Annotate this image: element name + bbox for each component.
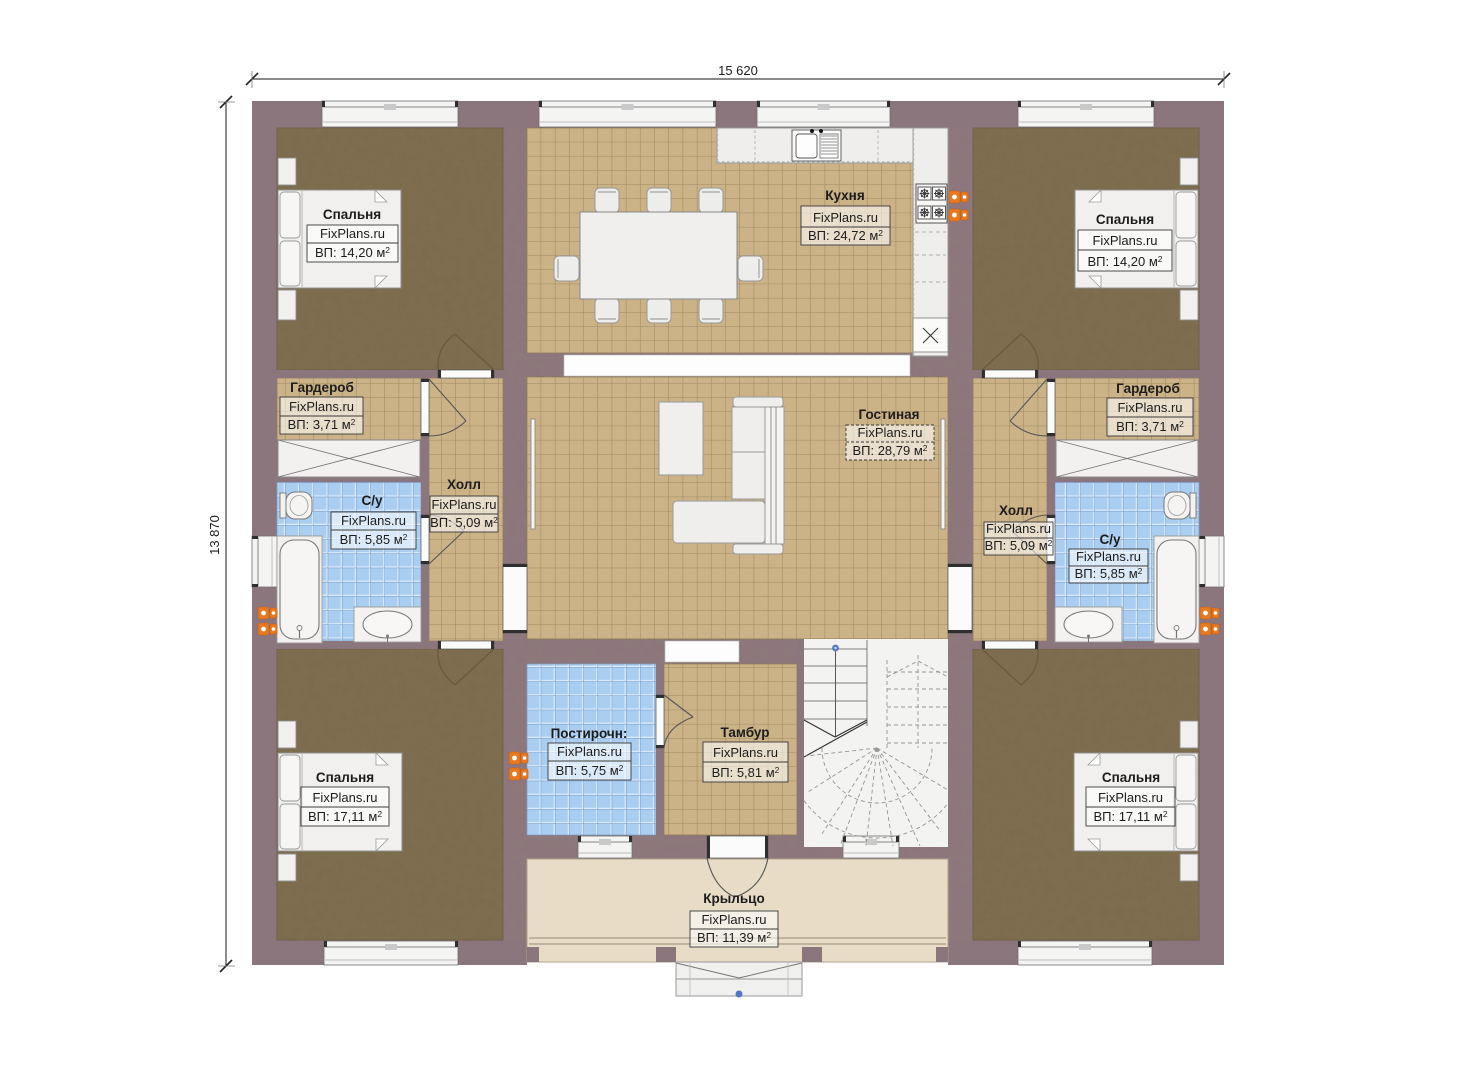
- svg-text:Кухня: Кухня: [825, 188, 864, 203]
- svg-text:FixPlans.ru: FixPlans.ru: [857, 425, 922, 440]
- svg-text:Спальня: Спальня: [316, 770, 374, 785]
- svg-text:Гардероб: Гардероб: [290, 380, 354, 395]
- svg-text:ВП: 3,71 м2: ВП: 3,71 м2: [288, 417, 356, 432]
- svg-text:ВП: 5,85 м2: ВП: 5,85 м2: [340, 532, 408, 547]
- svg-text:FixPlans.ru: FixPlans.ru: [341, 513, 406, 528]
- svg-text:ВП: 3,71 м2: ВП: 3,71 м2: [1116, 419, 1184, 434]
- svg-text:Гостиная: Гостиная: [858, 407, 919, 422]
- svg-text:ВП: 17,11 м2: ВП: 17,11 м2: [1093, 809, 1167, 824]
- svg-text:ВП: 5,09 м2: ВП: 5,09 м2: [430, 515, 498, 530]
- svg-text:ВП: 28,79 м2: ВП: 28,79 м2: [852, 443, 927, 458]
- svg-text:FixPlans.ru: FixPlans.ru: [986, 521, 1051, 536]
- svg-text:ВП: 14,20 м2: ВП: 14,20 м2: [1087, 254, 1162, 269]
- svg-text:FixPlans.ru: FixPlans.ru: [431, 497, 496, 512]
- svg-text:FixPlans.ru: FixPlans.ru: [289, 399, 354, 414]
- svg-text:ВП: 17,11 м2: ВП: 17,11 м2: [308, 809, 382, 824]
- svg-text:Спальня: Спальня: [1096, 212, 1154, 227]
- svg-text:FixPlans.ru: FixPlans.ru: [557, 744, 622, 759]
- svg-text:FixPlans.ru: FixPlans.ru: [701, 912, 766, 927]
- svg-text:ВП: 5,81 м2: ВП: 5,81 м2: [712, 765, 780, 780]
- svg-text:Холл: Холл: [999, 503, 1033, 518]
- svg-text:FixPlans.ru: FixPlans.ru: [312, 790, 377, 805]
- svg-text:13 870: 13 870: [207, 515, 222, 555]
- svg-text:Постирочн:: Постирочн:: [551, 726, 628, 741]
- svg-text:Крыльцо: Крыльцо: [703, 891, 764, 906]
- svg-text:С/у: С/у: [361, 493, 383, 508]
- svg-text:FixPlans.ru: FixPlans.ru: [1076, 549, 1141, 564]
- svg-text:ВП: 11,39 м2: ВП: 11,39 м2: [697, 930, 771, 945]
- svg-text:Холл: Холл: [447, 477, 481, 492]
- svg-text:Спальня: Спальня: [323, 207, 381, 222]
- svg-text:ВП: 5,75 м2: ВП: 5,75 м2: [556, 763, 624, 778]
- svg-text:С/у: С/у: [1099, 532, 1121, 547]
- svg-text:FixPlans.ru: FixPlans.ru: [1098, 790, 1163, 805]
- svg-text:FixPlans.ru: FixPlans.ru: [1092, 233, 1157, 248]
- svg-text:FixPlans.ru: FixPlans.ru: [1117, 400, 1182, 415]
- svg-text:ВП: 24,72 м2: ВП: 24,72 м2: [808, 228, 883, 243]
- svg-text:ВП: 5,85 м2: ВП: 5,85 м2: [1075, 566, 1143, 581]
- svg-text:Гардероб: Гардероб: [1116, 381, 1180, 396]
- svg-text:FixPlans.ru: FixPlans.ru: [813, 210, 878, 225]
- svg-text:ВП: 5,09 м2: ВП: 5,09 м2: [985, 538, 1053, 553]
- svg-text:15 620: 15 620: [718, 63, 758, 78]
- svg-text:ВП: 14,20 м2: ВП: 14,20 м2: [315, 245, 390, 260]
- svg-text:Тамбур: Тамбур: [721, 725, 770, 740]
- svg-text:FixPlans.ru: FixPlans.ru: [713, 745, 778, 760]
- svg-text:Спальня: Спальня: [1102, 770, 1160, 785]
- svg-text:FixPlans.ru: FixPlans.ru: [320, 226, 385, 241]
